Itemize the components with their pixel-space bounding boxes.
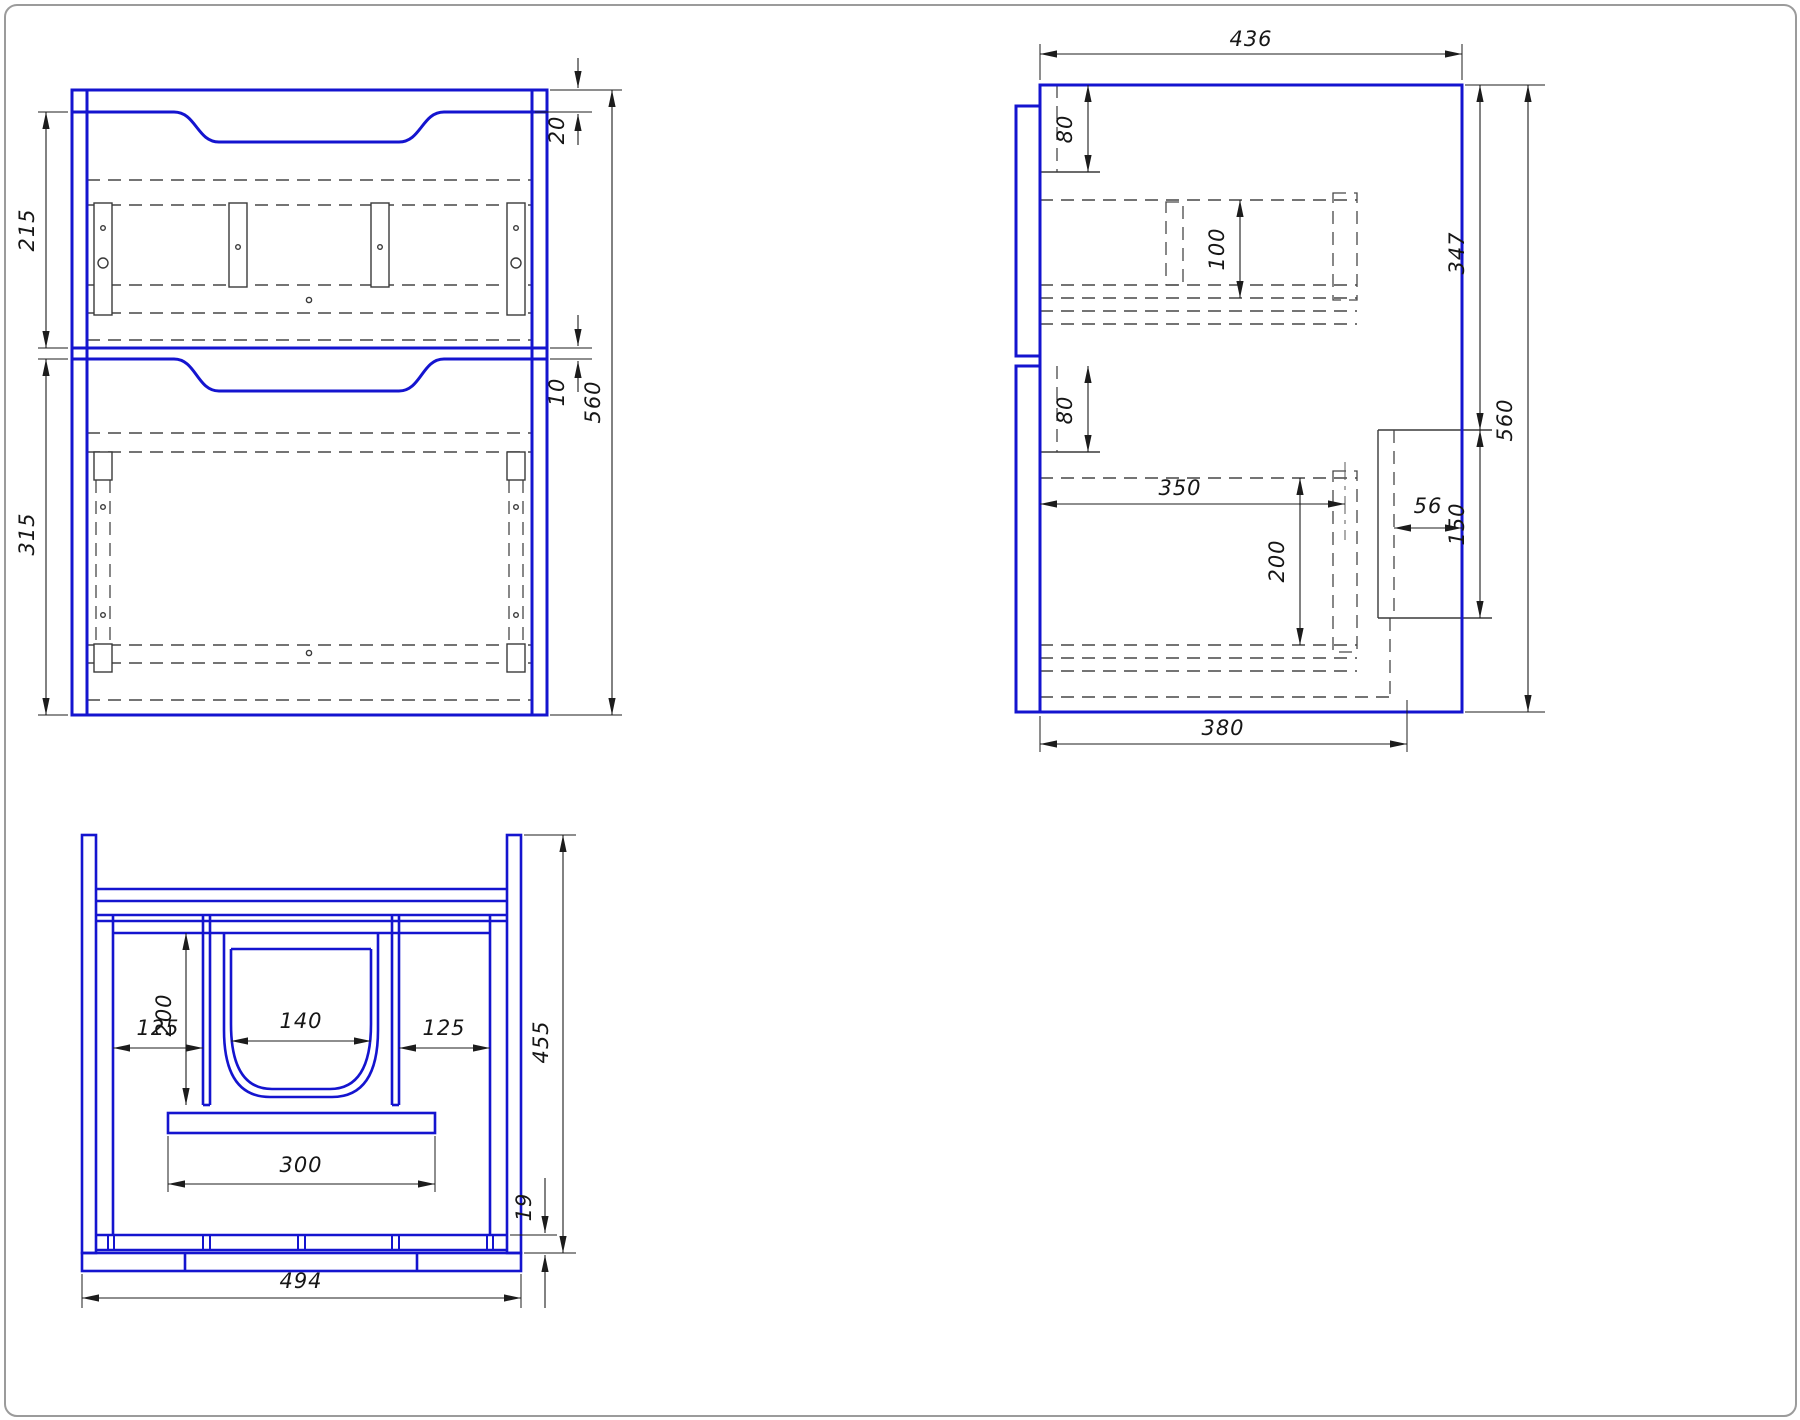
bottom-drawer-front-edge: [1016, 366, 1040, 712]
drawer-slide-brackets: [94, 203, 525, 672]
technical-drawing-canvas: 215 315 20 10 560: [0, 0, 1800, 1420]
dim-upper-section-height: 347: [1445, 231, 1469, 274]
bottom-band-ticks: [108, 1235, 493, 1250]
dim-side-total-height: 560: [1493, 398, 1517, 441]
dim-back-rail-offset-mid: 80: [1053, 396, 1077, 425]
front-hidden-lines: [87, 180, 532, 700]
dim-top-drawer-height: 215: [15, 208, 39, 251]
screw-hole: [514, 505, 519, 510]
dim-drawer-gap: 10: [545, 378, 569, 407]
dim-lower-rail-height: 200: [1265, 539, 1289, 582]
side-view: 436 80 100 80 350 200 56 347 150: [1016, 27, 1545, 752]
top-dimensions: 140 200 125 125 300 455 19: [82, 835, 576, 1308]
dim-back-rail-offset-top: 80: [1053, 115, 1077, 144]
dim-notch-width: 56: [1414, 494, 1443, 518]
screw-hole: [514, 613, 519, 618]
screw-hole: [101, 613, 106, 618]
top-structure: [82, 835, 521, 1271]
drain-panel: [168, 1113, 435, 1133]
side-panel-right: [507, 835, 521, 1253]
drawing-page: 215 315 20 10 560: [0, 0, 1800, 1420]
dim-left-offset: 125: [136, 1016, 179, 1040]
screw-hole: [101, 505, 106, 510]
dim-rail-length: 350: [1158, 476, 1201, 500]
side-dimensions: 436 80 100 80 350 200 56 347 150: [1040, 27, 1545, 752]
dim-bottom-drawer-height: 315: [15, 512, 39, 555]
dim-right-offset: 125: [422, 1016, 465, 1040]
front-view: 215 315 20 10 560: [15, 58, 622, 715]
dim-drain-panel-width: 300: [279, 1153, 322, 1177]
front-outline: [72, 90, 547, 715]
dim-total-depth: 455: [529, 1020, 553, 1063]
bottom-drawer-handle-recess: [72, 359, 547, 391]
screw-hole: [306, 297, 311, 302]
top-view: 140 200 125 125 300 455 19: [82, 835, 576, 1308]
screw-hole: [306, 650, 311, 655]
top-drawer-handle-recess: [72, 112, 547, 142]
dim-top-depth: 436: [1229, 27, 1272, 51]
dim-slide-rail-height: 100: [1205, 227, 1229, 270]
page-frame: [5, 5, 1796, 1416]
dim-bottom-panel-thickness: 19: [512, 1193, 536, 1222]
dim-top-rail-height: 20: [545, 116, 569, 145]
dim-sink-cutout-width: 140: [279, 1009, 322, 1033]
dim-notch-height: 150: [1445, 502, 1469, 545]
top-drawer-front-edge: [1016, 106, 1040, 356]
dim-bottom-depth: 380: [1201, 716, 1244, 740]
dim-total-width: 494: [279, 1269, 322, 1293]
side-panel-left: [82, 835, 96, 1253]
front-structure: [72, 90, 547, 715]
dim-front-total-height: 560: [581, 380, 605, 423]
side-hidden-lines: [1040, 85, 1492, 697]
